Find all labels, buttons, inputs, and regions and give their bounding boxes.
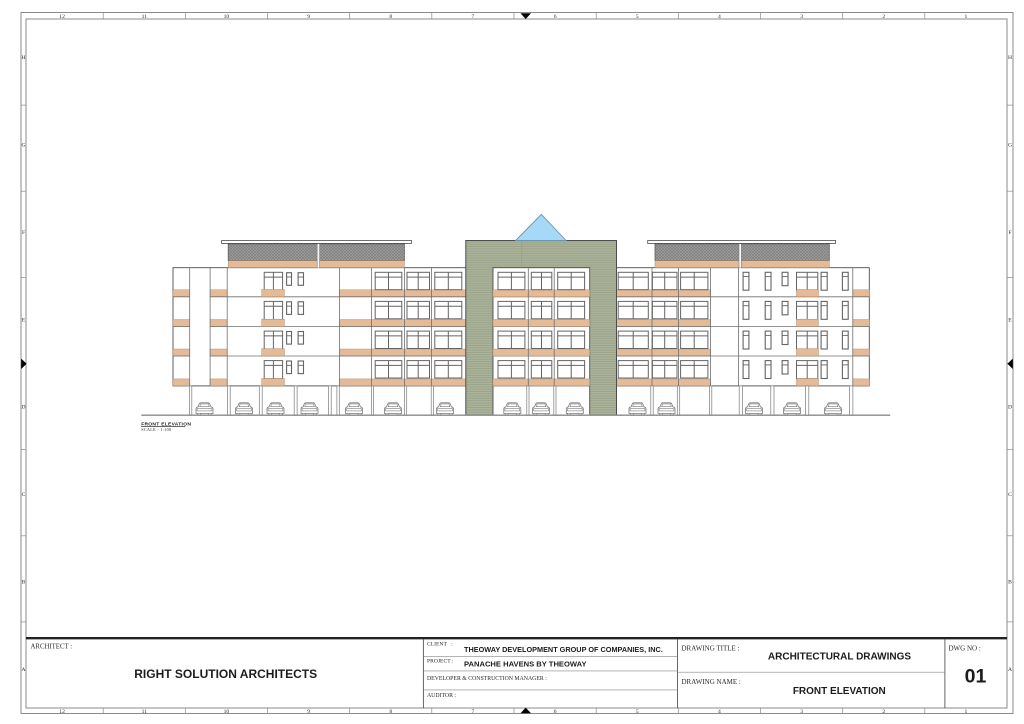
svg-text:RIGHT SOLUTION ARCHITECTS: RIGHT SOLUTION ARCHITECTS <box>134 667 317 681</box>
svg-text:G: G <box>1008 142 1012 148</box>
svg-text:DRAWING TITLE :: DRAWING TITLE : <box>682 645 740 653</box>
svg-text:2: 2 <box>882 14 885 20</box>
svg-text:SCALE - 1:100: SCALE - 1:100 <box>141 427 171 432</box>
svg-text:A: A <box>21 667 25 673</box>
svg-text:12: 12 <box>59 709 65 715</box>
svg-text:1: 1 <box>965 14 968 20</box>
svg-text:9: 9 <box>307 709 310 715</box>
svg-text:C: C <box>1008 492 1012 498</box>
svg-text:F: F <box>22 230 25 236</box>
svg-text:B: B <box>1008 580 1012 586</box>
svg-text:AUDITOR :: AUDITOR : <box>427 693 456 699</box>
svg-text:H: H <box>1008 55 1012 61</box>
svg-text:DWG NO :: DWG NO : <box>949 645 981 653</box>
svg-text:11: 11 <box>142 14 148 20</box>
svg-text:3: 3 <box>800 709 803 715</box>
svg-text:PANACHE HAVENS BY THEOWAY: PANACHE HAVENS BY THEOWAY <box>464 659 587 668</box>
svg-text:PROJECT :: PROJECT : <box>427 659 454 665</box>
svg-text:8: 8 <box>389 14 392 20</box>
svg-text:THEOWAY DEVELOPMENT GROUP OF C: THEOWAY DEVELOPMENT GROUP OF COMPANIES, … <box>464 645 663 654</box>
svg-text:6: 6 <box>554 709 557 715</box>
svg-text:H: H <box>21 55 25 61</box>
svg-text:7: 7 <box>472 14 475 20</box>
svg-text:3: 3 <box>800 14 803 20</box>
svg-text:11: 11 <box>142 709 148 715</box>
svg-text:DEVELOPER & CONSTRUCTION MANAG: DEVELOPER & CONSTRUCTION MANAGER : <box>427 676 547 682</box>
svg-text:CLIENT :: CLIENT : <box>427 642 453 648</box>
svg-text:C: C <box>22 492 26 498</box>
svg-text:4: 4 <box>718 709 721 715</box>
svg-text:12: 12 <box>59 14 65 20</box>
svg-text:DRAWING NAME :: DRAWING NAME : <box>682 678 741 686</box>
svg-text:8: 8 <box>389 709 392 715</box>
svg-text:D: D <box>21 405 25 411</box>
svg-text:01: 01 <box>965 666 987 688</box>
svg-text:7: 7 <box>472 709 475 715</box>
svg-text:6: 6 <box>554 14 557 20</box>
svg-text:A: A <box>1008 667 1012 673</box>
svg-text:E: E <box>1008 317 1012 323</box>
svg-text:G: G <box>21 142 25 148</box>
svg-text:D: D <box>1008 405 1012 411</box>
svg-text:5: 5 <box>636 14 639 20</box>
svg-text:2: 2 <box>882 709 885 715</box>
svg-text:10: 10 <box>224 14 230 20</box>
svg-text:10: 10 <box>224 709 230 715</box>
svg-text:F: F <box>1008 230 1011 236</box>
svg-text:1: 1 <box>965 709 968 715</box>
svg-text:9: 9 <box>307 14 310 20</box>
svg-text:B: B <box>22 580 26 586</box>
svg-text:5: 5 <box>636 709 639 715</box>
svg-text:FRONT ELEVATION: FRONT ELEVATION <box>793 686 886 697</box>
svg-text:ARCHITECTURAL DRAWINGS: ARCHITECTURAL DRAWINGS <box>768 652 911 663</box>
svg-text:ARCHITECT :: ARCHITECT : <box>31 644 73 651</box>
svg-text:4: 4 <box>718 14 721 20</box>
svg-text:E: E <box>22 317 26 323</box>
